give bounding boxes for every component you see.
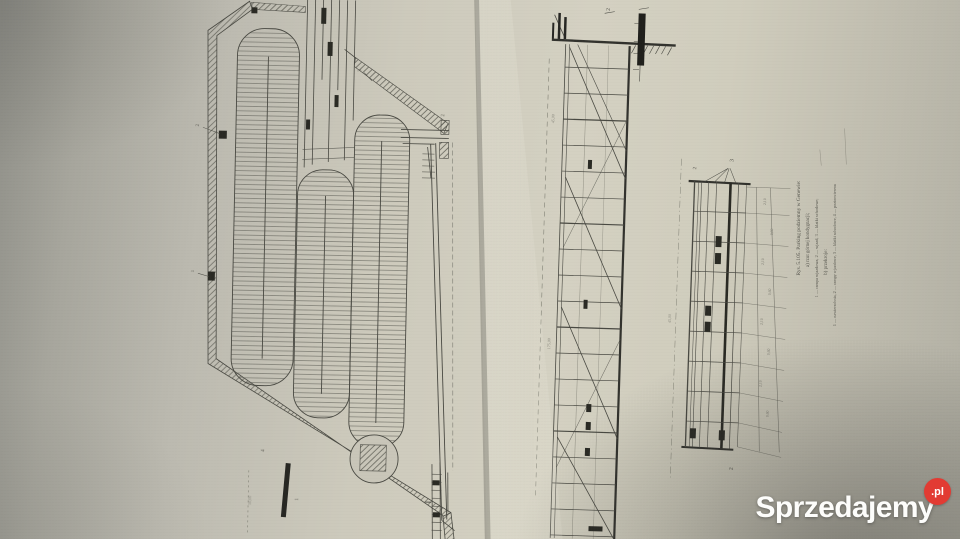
book-photo: 2 1 3 2 1 4 50,00 [0, 0, 960, 539]
photo-grain [0, 0, 960, 539]
watermark-tld-badge: .pl [924, 478, 951, 505]
watermark-brand: Sprzedajemy [756, 491, 934, 524]
watermark: Sprzedajemy .pl [756, 491, 934, 525]
